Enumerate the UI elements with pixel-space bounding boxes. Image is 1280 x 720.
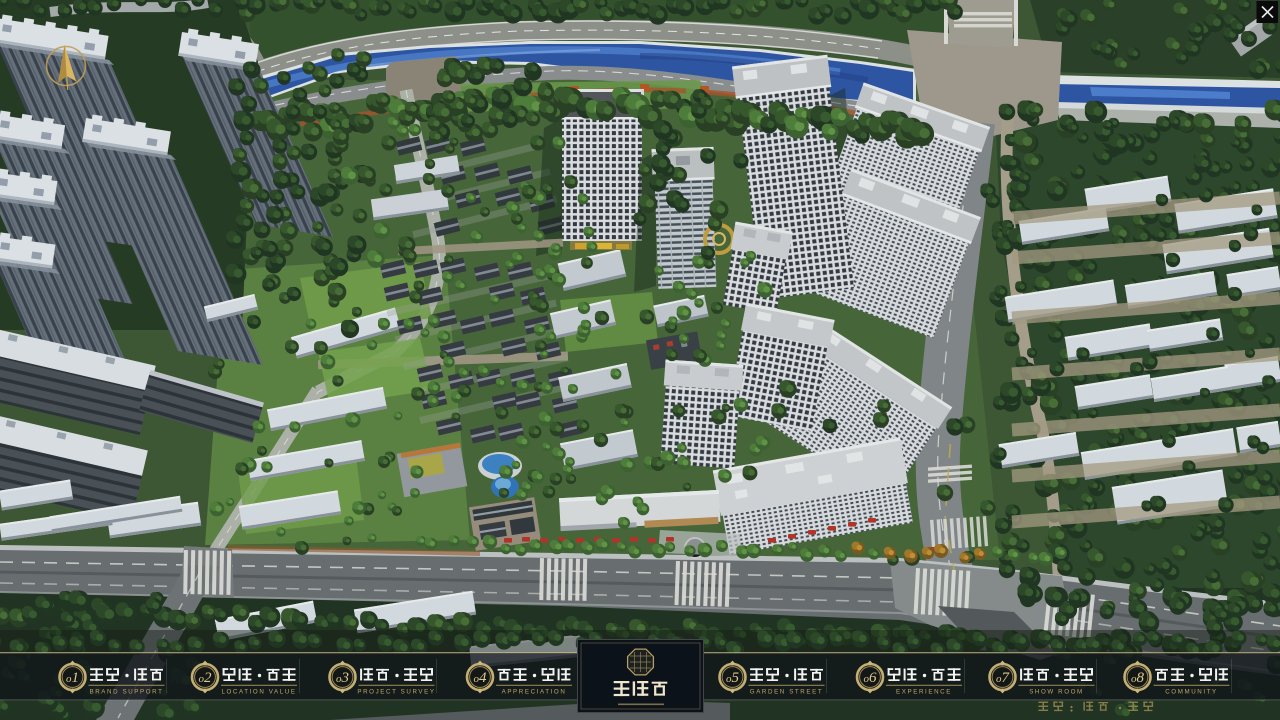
svg-text:EXPERIENCE: EXPERIENCE (896, 689, 952, 696)
svg-text:o3: o3 (336, 670, 349, 686)
svg-text:BRAND SUPPORT: BRAND SUPPORT (90, 689, 164, 696)
svg-text:o7: o7 (996, 670, 1011, 686)
svg-text:o5: o5 (726, 670, 740, 686)
svg-text:o4: o4 (474, 670, 488, 686)
svg-text:PROJECT SURVEY: PROJECT SURVEY (357, 689, 435, 696)
svg-text:o6: o6 (864, 670, 878, 686)
svg-text:o2: o2 (199, 670, 213, 686)
svg-text:COMMUNITY: COMMUNITY (1165, 689, 1218, 696)
svg-text:APPRECIATION: APPRECIATION (502, 689, 567, 696)
svg-text:o8: o8 (1131, 670, 1145, 686)
svg-text:SHOW ROOM: SHOW ROOM (1029, 689, 1084, 696)
svg-text:LOCATION VALUE: LOCATION VALUE (221, 689, 296, 696)
svg-text:o1: o1 (66, 670, 79, 686)
svg-text:GARDEN STREET: GARDEN STREET (750, 689, 823, 696)
